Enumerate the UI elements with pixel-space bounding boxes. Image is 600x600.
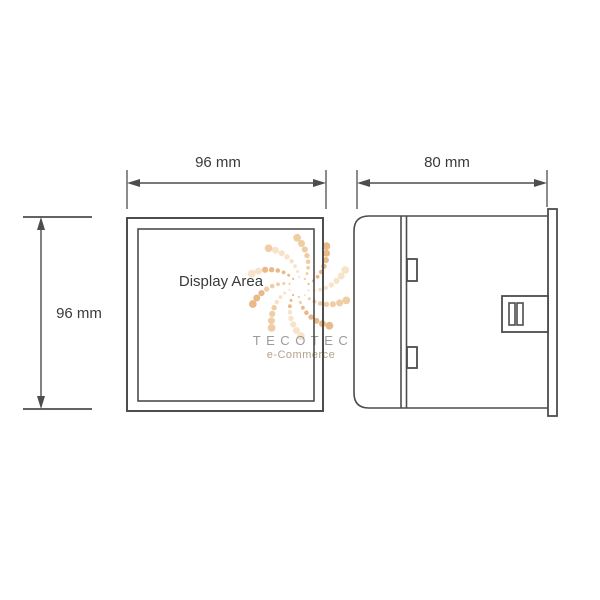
front-bezel-flange bbox=[548, 209, 557, 416]
spiral-dot bbox=[308, 297, 311, 300]
spiral-dot bbox=[307, 283, 309, 285]
side-depth-label: 80 mm bbox=[424, 154, 470, 171]
spiral-dot bbox=[307, 289, 309, 291]
arrow-left-icon bbox=[357, 179, 370, 187]
display-area-label: Display Area bbox=[179, 273, 264, 290]
dimension-drawing-canvas: TECOTEC e-Commerce Display Area bbox=[0, 0, 600, 600]
spiral-dot bbox=[324, 302, 329, 307]
spiral-dot bbox=[298, 296, 300, 298]
spiral-dot bbox=[271, 305, 276, 310]
spiral-dot bbox=[272, 247, 279, 254]
dimension-front-width: 96 mm bbox=[127, 154, 326, 209]
side-view bbox=[354, 209, 557, 416]
spiral-dot bbox=[302, 246, 308, 252]
spiral-dot bbox=[282, 282, 285, 285]
spiral-dot bbox=[276, 282, 280, 286]
technical-drawing: TECOTEC e-Commerce Display Area bbox=[0, 0, 600, 600]
spiral-dot bbox=[306, 260, 311, 265]
spiral-dot bbox=[279, 250, 285, 256]
front-height-label: 96 mm bbox=[56, 305, 102, 322]
arrow-right-icon bbox=[534, 179, 547, 187]
spiral-dot bbox=[264, 286, 269, 291]
spiral-dot bbox=[275, 300, 280, 305]
spiral-dot bbox=[290, 299, 293, 302]
spiral-dot bbox=[342, 297, 350, 305]
spiral-dot bbox=[292, 278, 294, 280]
spiral-dot bbox=[338, 273, 345, 280]
spiral-logo-icon bbox=[248, 234, 350, 340]
spiral-dot bbox=[288, 316, 293, 321]
spiral-dot bbox=[292, 294, 294, 296]
spiral-dot bbox=[304, 253, 309, 258]
front-width-label: 96 mm bbox=[195, 154, 241, 171]
spiral-dot bbox=[262, 267, 268, 273]
spiral-dot bbox=[276, 268, 281, 273]
spiral-dot bbox=[288, 289, 290, 291]
spiral-dot bbox=[308, 314, 313, 319]
spiral-dot bbox=[298, 240, 305, 247]
spiral-dot bbox=[306, 272, 309, 275]
spiral-dot bbox=[268, 324, 276, 332]
spiral-dot bbox=[249, 300, 257, 308]
tecotec-watermark: TECOTEC e-Commerce bbox=[248, 234, 354, 361]
spiral-dot bbox=[293, 264, 297, 268]
spiral-dot bbox=[258, 290, 264, 296]
spiral-dot bbox=[304, 310, 309, 315]
spiral-dot bbox=[288, 283, 290, 285]
spiral-dot bbox=[270, 284, 275, 289]
spiral-dot bbox=[333, 278, 339, 284]
mounting-clip-top bbox=[407, 259, 417, 281]
spiral-dot bbox=[316, 275, 320, 279]
spiral-dot bbox=[330, 301, 336, 307]
spiral-dot bbox=[301, 306, 305, 310]
spiral-dot bbox=[287, 274, 290, 277]
arrow-right-icon bbox=[313, 179, 326, 187]
spiral-dot bbox=[304, 278, 306, 280]
spiral-dot bbox=[304, 294, 306, 296]
spiral-dot bbox=[299, 301, 302, 304]
watermark-tagline: e-Commerce bbox=[267, 349, 336, 361]
spiral-dot bbox=[298, 276, 300, 278]
spiral-dot bbox=[318, 301, 323, 306]
spiral-dot bbox=[341, 266, 349, 274]
spiral-dot bbox=[265, 244, 273, 252]
spiral-dot bbox=[323, 250, 330, 257]
watermark-brand: TECOTEC bbox=[253, 333, 354, 348]
spiral-dot bbox=[283, 292, 286, 295]
spiral-dot bbox=[324, 286, 329, 291]
front-view-outer-frame bbox=[127, 218, 323, 411]
spiral-dot bbox=[268, 317, 275, 324]
spiral-dot bbox=[296, 270, 299, 273]
spiral-dot bbox=[269, 267, 274, 272]
spiral-dot bbox=[290, 321, 296, 327]
arrow-down-icon bbox=[37, 396, 45, 409]
spiral-dot bbox=[326, 322, 334, 330]
spiral-dot bbox=[289, 259, 294, 264]
mounting-clip-bottom bbox=[407, 347, 417, 368]
spiral-dot bbox=[336, 299, 343, 306]
dimension-side-depth: 80 mm bbox=[357, 154, 547, 209]
arrow-left-icon bbox=[127, 179, 140, 187]
spiral-dot bbox=[306, 266, 310, 270]
arrow-up-icon bbox=[37, 217, 45, 230]
spiral-dot bbox=[288, 310, 293, 315]
spiral-dot bbox=[279, 295, 283, 299]
spiral-dot bbox=[284, 254, 289, 259]
spiral-dot bbox=[269, 311, 275, 317]
spiral-dot bbox=[329, 282, 334, 287]
spiral-dot bbox=[282, 271, 286, 275]
spiral-dot bbox=[318, 288, 322, 292]
spiral-dot bbox=[288, 304, 292, 308]
dimension-front-height: 96 mm bbox=[23, 217, 102, 409]
spiral-dot bbox=[253, 295, 260, 302]
front-view: Display Area bbox=[127, 218, 323, 411]
